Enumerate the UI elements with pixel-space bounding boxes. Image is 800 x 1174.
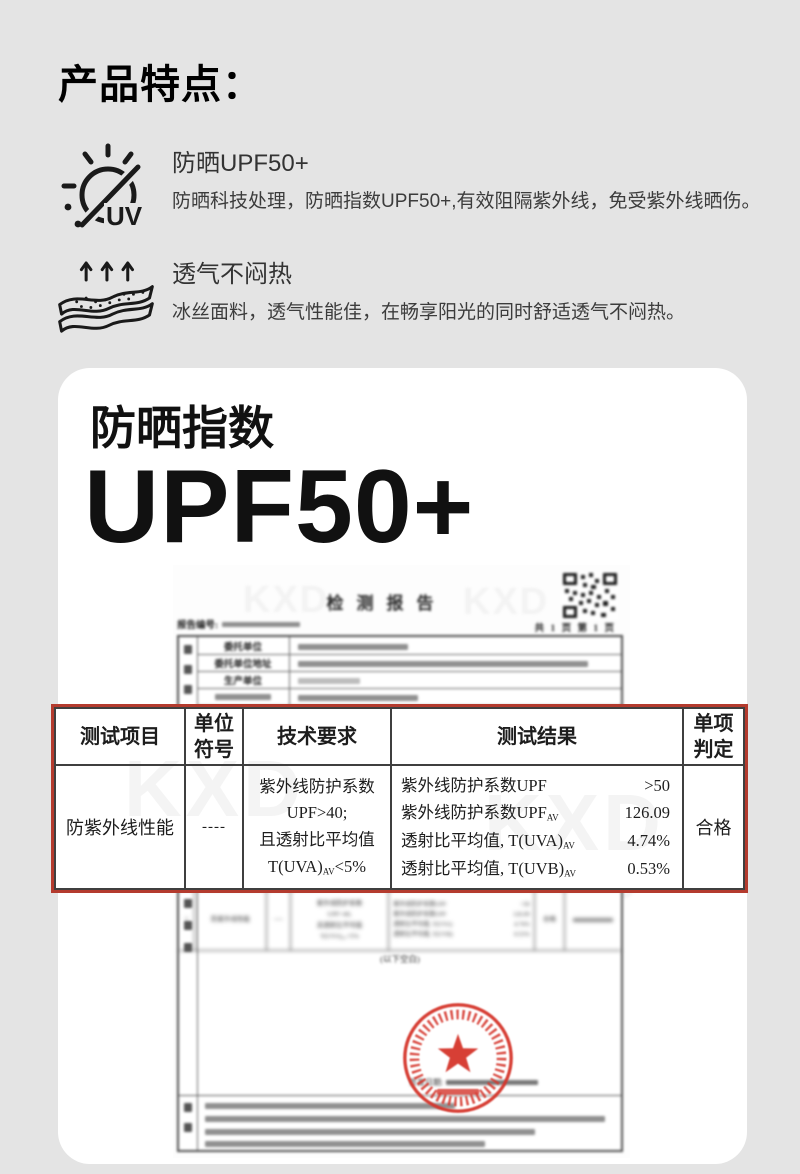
mini-unit: ---- <box>267 890 291 950</box>
col-header-individual-verdict: 单项判定 <box>684 709 743 766</box>
mini-item: 防紫外线性能 <box>195 890 267 950</box>
official-stamp <box>400 1000 516 1116</box>
mini-results: 紫外线防护系数UPF>50 紫外线防护系数UPF126.09 透射比平均值, T… <box>389 890 535 950</box>
result-line: 紫外线防护系数UPFAV 126.09 <box>392 799 682 827</box>
feature-desc: 冰丝面料，透气性能佳，在畅享阳光的同时舒适透气不闷热。 <box>172 299 685 327</box>
mini-requirement: 紫外线防护系数 UPF>40; 且透射比平均值 T(UVA)AV<5% <box>291 890 389 950</box>
cell-test-results: 紫外线防护系数UPF >50 紫外线防护系数UPFAV 126.09 透射比平均… <box>392 766 684 888</box>
blurred-note-line <box>205 1129 535 1135</box>
feature-desc: 防晒科技处理，防晒指数UPF50+,有效阻隔紫外线，免受紫外线晒伤。 <box>172 188 761 216</box>
cell-verdict: 合格 <box>684 766 743 888</box>
mini-method <box>565 890 621 950</box>
report-number-line: 报告编号: <box>177 617 300 631</box>
cell-test-item: 防紫外线性能 <box>56 766 186 888</box>
product-detail-page: 产品特点： UV 防晒UPF50+ 防晒科技 <box>0 0 800 1174</box>
feature-uv-protection: UV 防晒UPF50+ 防晒科技处理，防晒指数UPF50+,有效阻隔紫外线，免受… <box>52 141 762 233</box>
page-title: 产品特点： <box>58 52 263 110</box>
uv-sun-icon: UV <box>52 141 160 233</box>
result-line: 紫外线防护系数UPF >50 <box>392 772 682 800</box>
report-header-row: 委托单位 <box>197 637 621 655</box>
below-blank-note: (以下空白) <box>179 953 621 965</box>
header-row-label: 生产单位 <box>197 671 290 688</box>
cell-technical-requirement: 紫外线防护系数 UPF>40; 且透射比平均值 T(UVA)AV<5% <box>244 766 392 888</box>
feature-title: 透气不闷热 <box>172 254 685 289</box>
svg-text:UV: UV <box>106 201 143 231</box>
header-row-label: 委托单位 <box>197 637 290 654</box>
col-header-unit-symbol: 单位符号 <box>186 709 244 766</box>
breathable-fabric-icon <box>52 252 160 344</box>
card-headline: UPF50+ <box>84 448 474 567</box>
upf-index-card: 防晒指数 UPF50+ KXD KXD KXD KXD KXD KXD KXD … <box>58 368 747 1164</box>
report-header-row: 生产单位 <box>197 671 621 689</box>
report-pages: 共 1 页 第 1 页 <box>535 620 616 634</box>
feature-title: 防晒UPF50+ <box>172 143 761 178</box>
mini-row-number: 1 <box>179 890 195 950</box>
mini-verdict: 合格 <box>535 890 565 950</box>
result-line: 透射比平均值, T(UVA)AV 4.74% <box>392 827 682 855</box>
col-header-test-result: 测试结果 <box>392 709 684 766</box>
blurred-note-line <box>205 1141 485 1147</box>
report-header-row: 委托单位地址 <box>197 654 621 672</box>
report-number-label: 报告编号: <box>177 617 218 631</box>
cell-unit-symbol: ---- <box>186 766 244 888</box>
col-header-technical-requirement: 技术要求 <box>244 709 392 766</box>
report-mini-table: 1 防紫外线性能 ---- 紫外线防护系数 UPF>40; 且透射比平均值 T(… <box>179 889 621 951</box>
header-row-label: 委托单位地址 <box>197 654 290 671</box>
feature-breathable: 透气不闷热 冰丝面料，透气性能佳，在畅享阳光的同时舒适透气不闷热。 <box>52 252 762 344</box>
col-header-test-item: 测试项目 <box>56 709 186 766</box>
qr-code <box>561 571 619 620</box>
result-table-grid: 测试项目 单位符号 技术要求 测试结果 单项判定 防紫外线性能 ---- 紫外线… <box>54 707 745 890</box>
highlighted-result-table: KXD KXD 测试项目 单位符号 技术要求 测试结果 单项判定 防紫外线性能 … <box>51 704 748 893</box>
blurred-text-bar <box>222 622 300 627</box>
feature-text: 防晒UPF50+ 防晒科技处理，防晒指数UPF50+,有效阻隔紫外线，免受紫外线… <box>160 141 761 216</box>
blurred-note-line <box>205 1116 605 1122</box>
report-title: 检测报告 <box>173 589 600 614</box>
result-line: 透射比平均值, T(UVB)AV 0.53% <box>392 855 682 883</box>
feature-text: 透气不闷热 冰丝面料，透气性能佳，在畅享阳光的同时舒适透气不闷热。 <box>160 252 685 327</box>
